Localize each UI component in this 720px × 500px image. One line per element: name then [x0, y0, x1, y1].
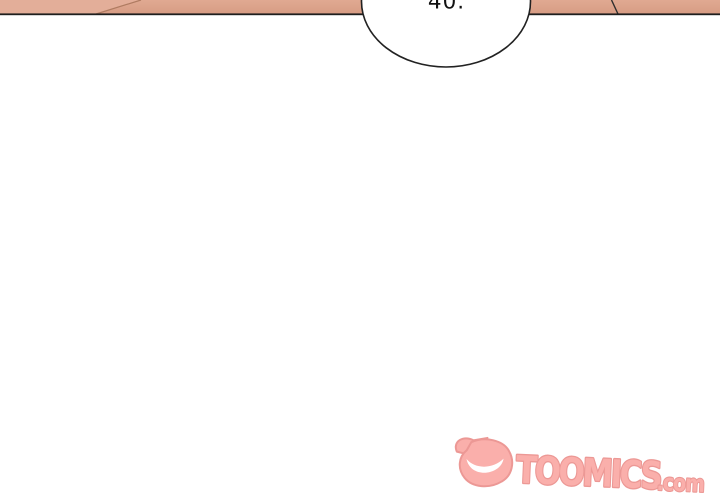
toomics-watermark: TOOMICS .com [449, 433, 719, 500]
comic-page: 40. TOOMICS .com [0, 0, 720, 500]
toomics-devil-icon [454, 437, 513, 488]
watermark-tld-text: .com [656, 468, 704, 497]
watermark-brand-text: TOOMICS [515, 449, 662, 499]
panel-border-line [0, 13, 720, 15]
comic-panel-strip: 40. [0, 0, 720, 70]
speech-bubble-text: 40. [428, 0, 465, 15]
